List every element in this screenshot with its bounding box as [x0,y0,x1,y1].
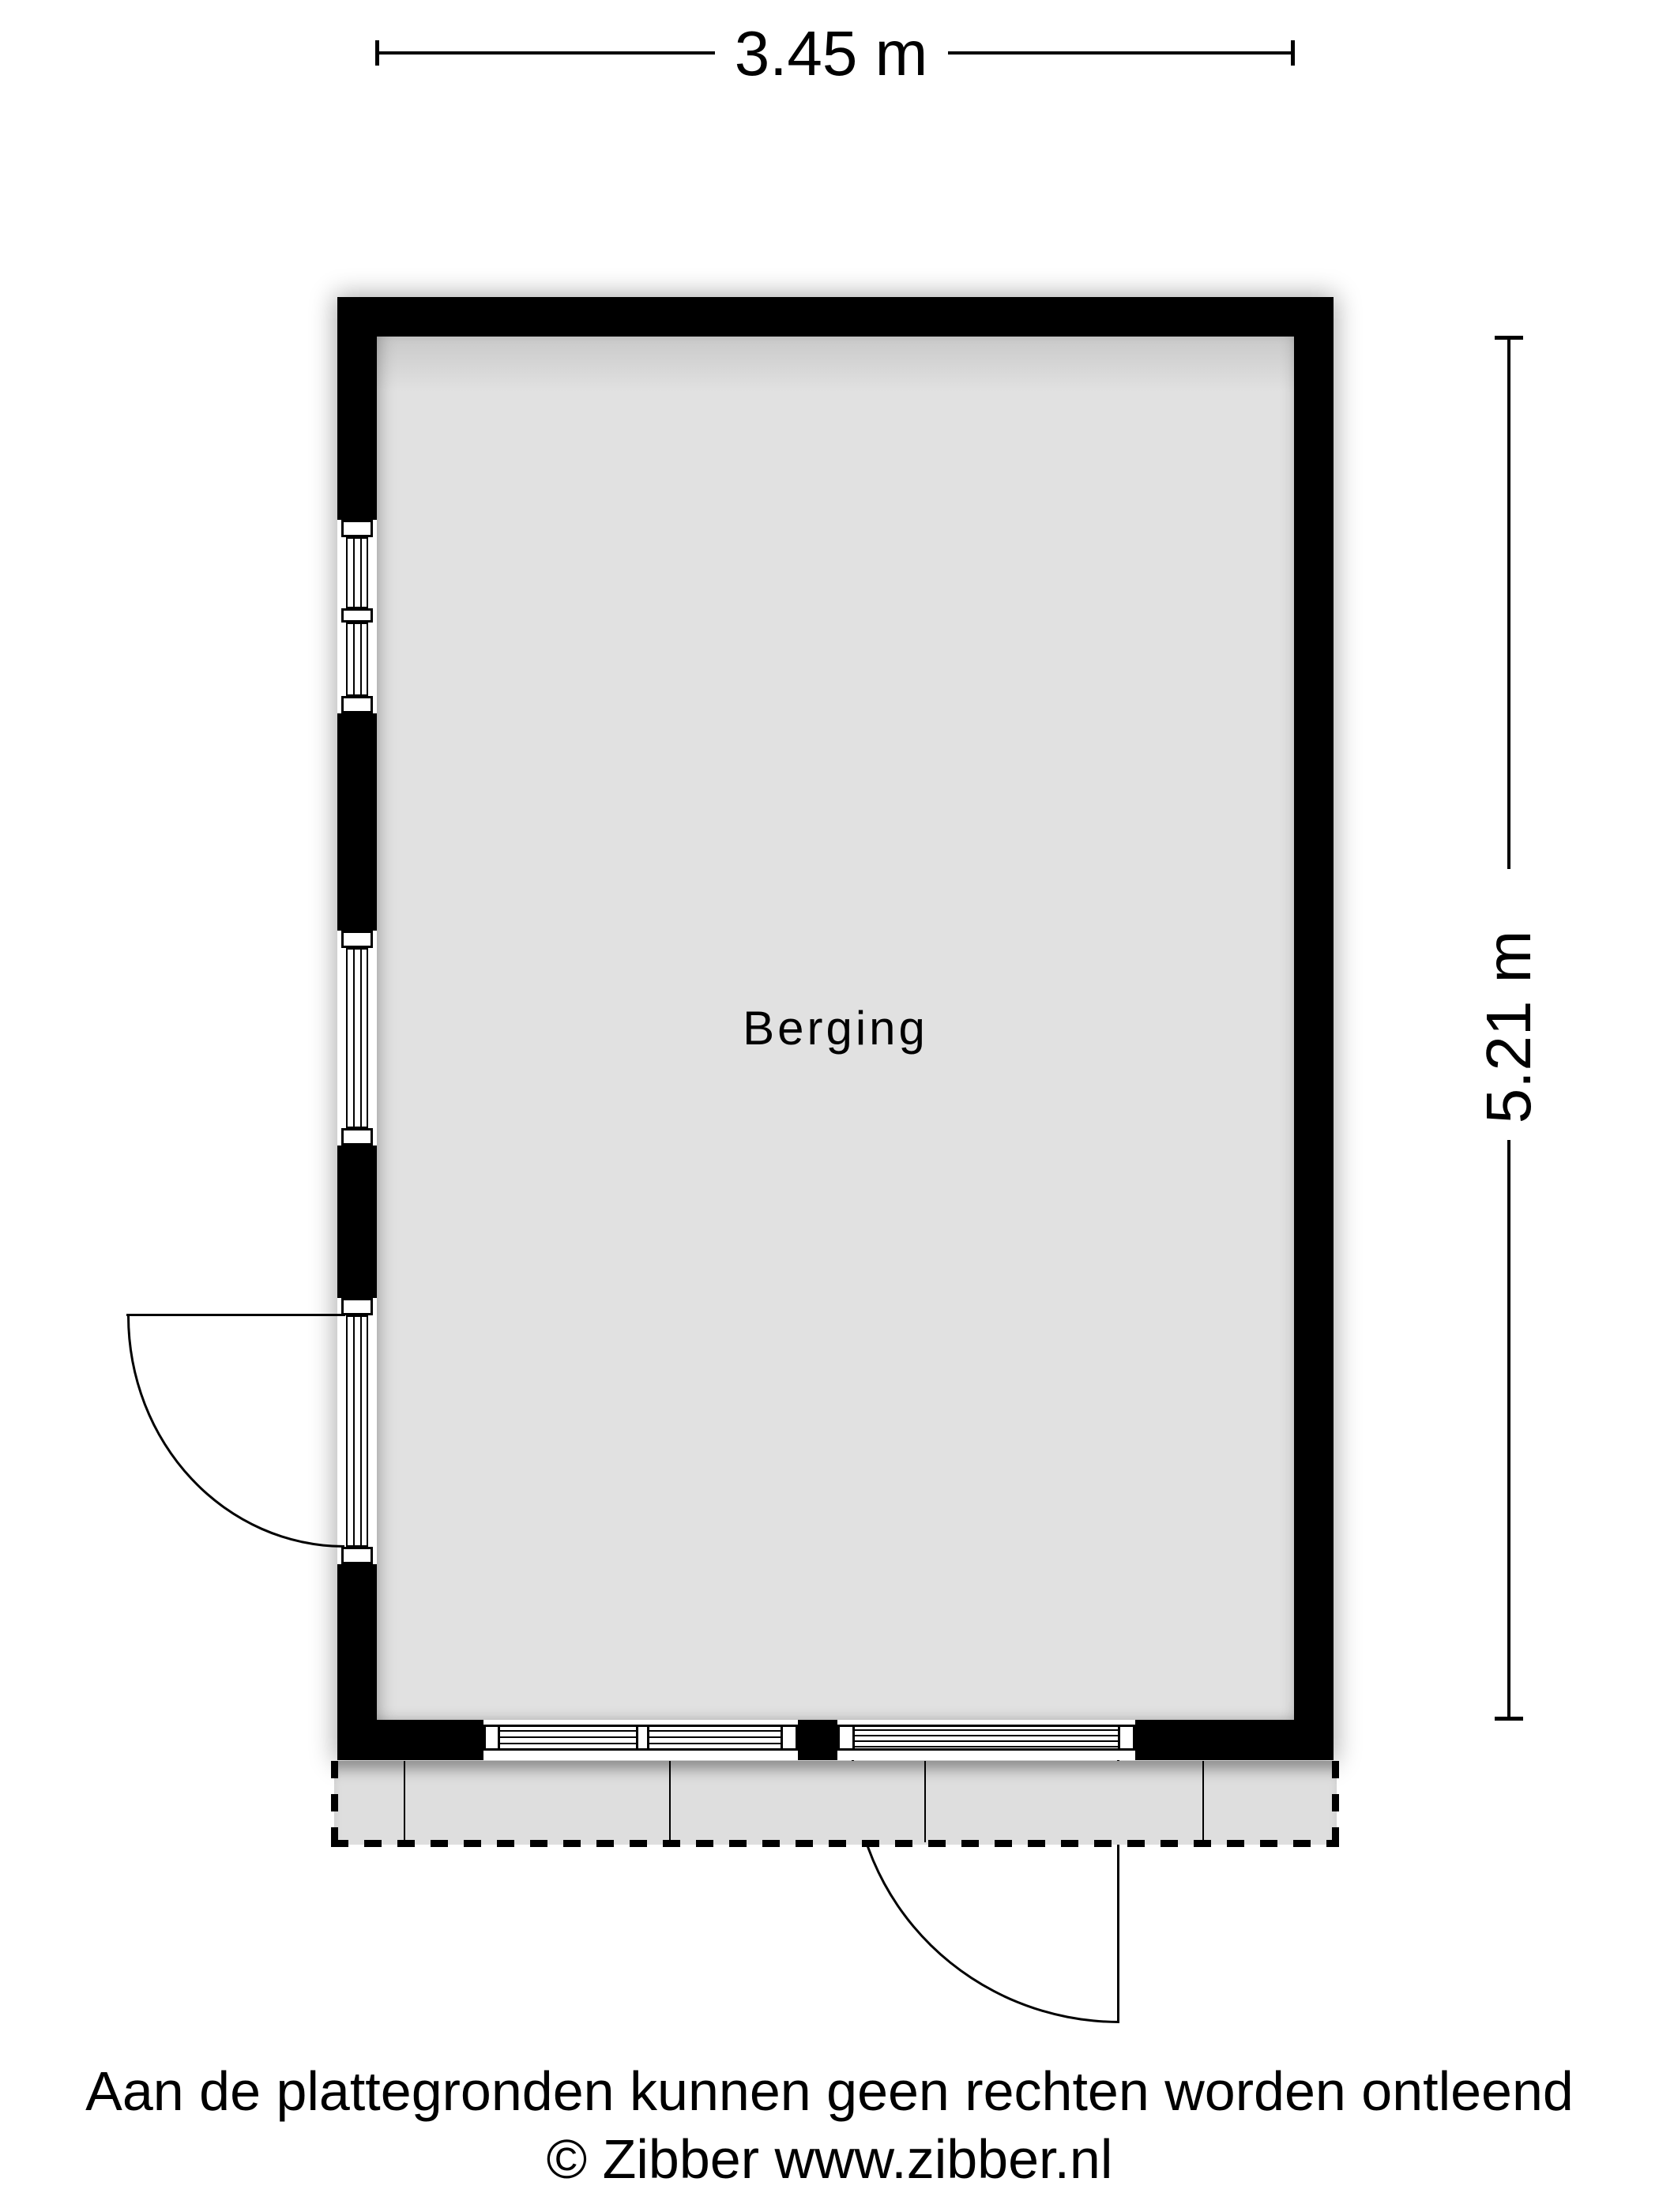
footer-disclaimer: Aan de plattegronden kunnen geen rechten… [0,2063,1659,2119]
terrace-dashed-edge-right [1332,1761,1339,1847]
window-left-lower [337,931,377,1145]
dim-horizontal-line-right [948,51,1294,55]
window-frame-cap [341,696,373,713]
window-mullion-post [636,1725,649,1751]
window-frame-cap [341,931,373,948]
door-frame-cap [341,1547,373,1564]
footer-copyright: © Zibber www.zibber.nl [0,2131,1659,2187]
window-frame-cap [341,520,373,537]
door-left-swing-arc [127,1316,344,1548]
window-left-upper [337,520,377,713]
dim-horizontal-label: 3.45 m [673,22,989,85]
door-frame-cap [1118,1725,1135,1751]
terrace-paving-divider [404,1761,405,1842]
dim-horizontal-tick-right [1291,40,1295,66]
dim-vertical-label: 5.21 m [1487,907,1531,1147]
window-bottom [483,1720,798,1760]
door-panel [346,1315,368,1547]
terrace-paving-divider [669,1761,671,1842]
window-glazing [346,948,368,1128]
terrace-paving-divider [924,1761,926,1842]
door-frame-cap [341,1298,373,1315]
dim-horizontal-tick-left [375,40,379,66]
terrace-dashed-edge-bottom [331,1840,1339,1847]
window-frame-cap [341,1128,373,1145]
dim-horizontal-line-left [377,51,715,55]
floorplan-page: 3.45 m 5.21 m Berging [0,0,1659,2212]
dim-vertical-tick-top [1495,336,1523,340]
room-label: Berging [377,1005,1294,1052]
door-frame-cap [837,1725,855,1751]
dim-vertical-line-top [1507,337,1510,869]
dim-vertical-tick-bottom [1495,1717,1523,1721]
terrace [334,1761,1337,1845]
window-glazing [346,537,368,608]
door-bottom [837,1720,1135,1760]
window-frame-cap [483,1725,500,1751]
terrace-dashed-edge-left [331,1761,338,1847]
terrace-paving-divider [1202,1761,1204,1842]
dim-vertical-line-bottom [1507,1140,1510,1721]
window-glazing [346,623,368,696]
window-frame-cap [781,1725,798,1751]
window-transom [341,608,373,623]
